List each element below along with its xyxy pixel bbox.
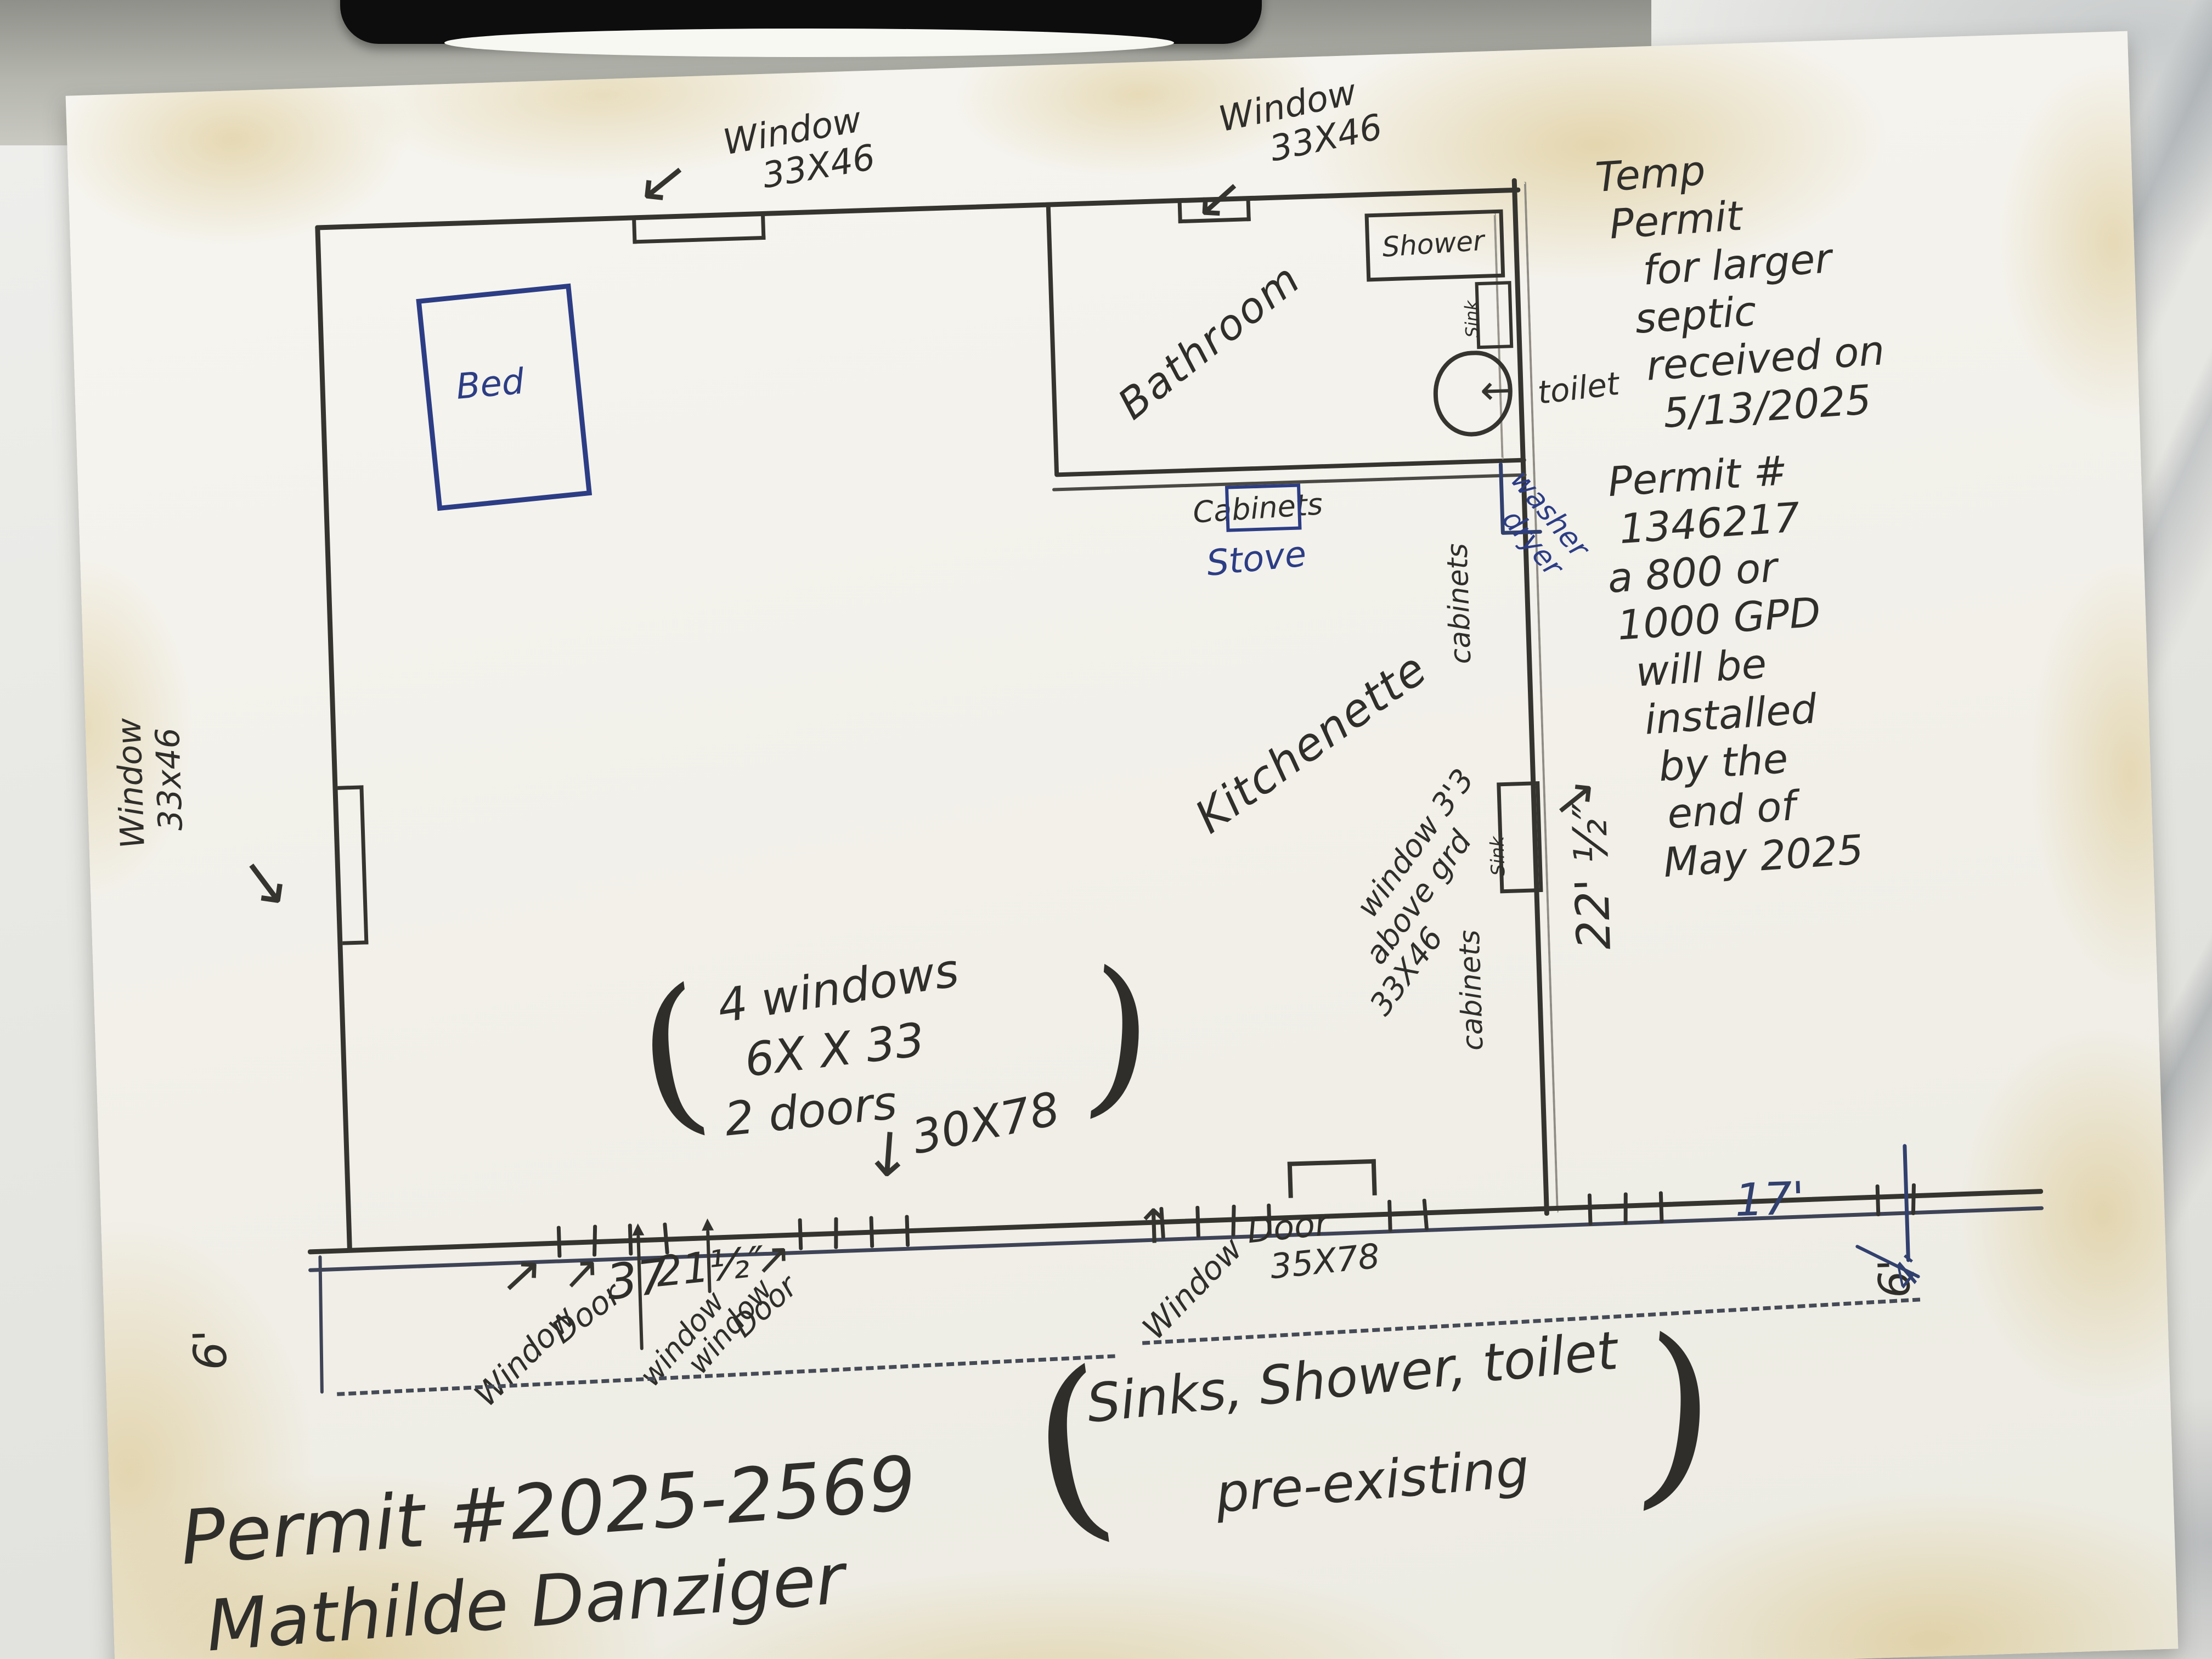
window-size-line: 33x46 (148, 716, 190, 832)
septic-permit-note: Permit # 1346217 a 800 or 1000 GPD will … (1606, 444, 1865, 889)
bottom-door-35x78: Door 35X78 (1245, 1199, 1381, 1288)
porch-bottom-dashed-left (337, 1354, 1115, 1396)
bed-label: Bed (455, 363, 526, 408)
window-label-line: Window (110, 718, 152, 849)
temp-permit-note: Temp Permit for larger septic received o… (1594, 136, 1889, 441)
wall-tick (869, 1216, 874, 1248)
bottom-dim-17ft: 17' (1734, 1173, 1805, 1226)
wall-tick (1231, 1205, 1235, 1237)
bathroom-label: Bathroom (1109, 255, 1309, 428)
wall-bathroom-bottom (1054, 458, 1526, 477)
arrow-icon: ↙ (1193, 162, 1245, 232)
cabinets-side-lower-label: cabinets (1453, 929, 1490, 1051)
window-notch-left-wall (337, 785, 368, 945)
cabinets-side-upper-label: cabinets (1441, 543, 1477, 664)
window-label-left-wall: Window 33x46 (110, 716, 190, 849)
wall-tick (1911, 1183, 1916, 1215)
dim-arrow-head (632, 1223, 645, 1236)
wall-tick (834, 1217, 838, 1249)
stove-box (1225, 483, 1302, 532)
arrow-icon: ↘ (234, 841, 296, 921)
center-note-paren-open: ( (626, 951, 719, 1156)
kitchenette-label: Kitchenette (1187, 644, 1437, 843)
preexisting-paren-open: ( (1018, 1328, 1125, 1566)
wall-tick (1624, 1192, 1628, 1224)
arrow-icon: ↗ (499, 1244, 544, 1305)
bath-sink-label: Sink (1461, 300, 1483, 338)
arrow-icon: ← (1479, 366, 1515, 414)
dim-arrow-head (701, 1218, 714, 1231)
wall-tick (1387, 1200, 1392, 1232)
center-note-line1: 4 windows (714, 944, 962, 1032)
wall-bathroom-left (1046, 205, 1059, 476)
porch-right-edge (1903, 1144, 1910, 1262)
wall-left (315, 225, 352, 1251)
wall-tick (905, 1215, 910, 1247)
window-notch-top-left (632, 215, 765, 244)
wall-tick (1195, 1206, 1200, 1238)
laptop-white-rim (444, 29, 1174, 57)
arrow-icon: ↙ (634, 143, 692, 218)
wall-tick (557, 1226, 562, 1257)
preexisting-line2: pre-existing (1214, 1438, 1532, 1523)
preexisting-paren-close: ) (1628, 1296, 1726, 1532)
wall-tick (1876, 1184, 1881, 1216)
center-note-line4: 30X78 (907, 1082, 1064, 1164)
arrow-icon: ↓ (860, 1118, 916, 1192)
wall-tick (798, 1218, 803, 1250)
porch-dim-left: 6' (184, 1328, 237, 1371)
dim-right-wall: 22' ½″ (1562, 801, 1621, 950)
wall-tick (1588, 1193, 1593, 1225)
arrow-icon: ↗ (754, 1234, 792, 1284)
door-notch-bottom (1288, 1159, 1377, 1198)
stove-label: Stove (1205, 535, 1308, 584)
wall-tick (1659, 1191, 1664, 1223)
shower-label: Shower (1381, 225, 1486, 263)
paper-sheet: Window 33X46 ↙ Window 33X46 ↙ Window 33x… (66, 31, 2179, 1659)
arrow-icon: ↑ (1133, 1199, 1175, 1255)
center-note-paren-close: ) (1077, 935, 1161, 1138)
washer-dryer-label: washer dryer (1480, 464, 1595, 584)
photo-of-floor-plan-sketch: Window 33X46 ↙ Window 33X46 ↙ Window 33x… (0, 0, 2212, 1659)
